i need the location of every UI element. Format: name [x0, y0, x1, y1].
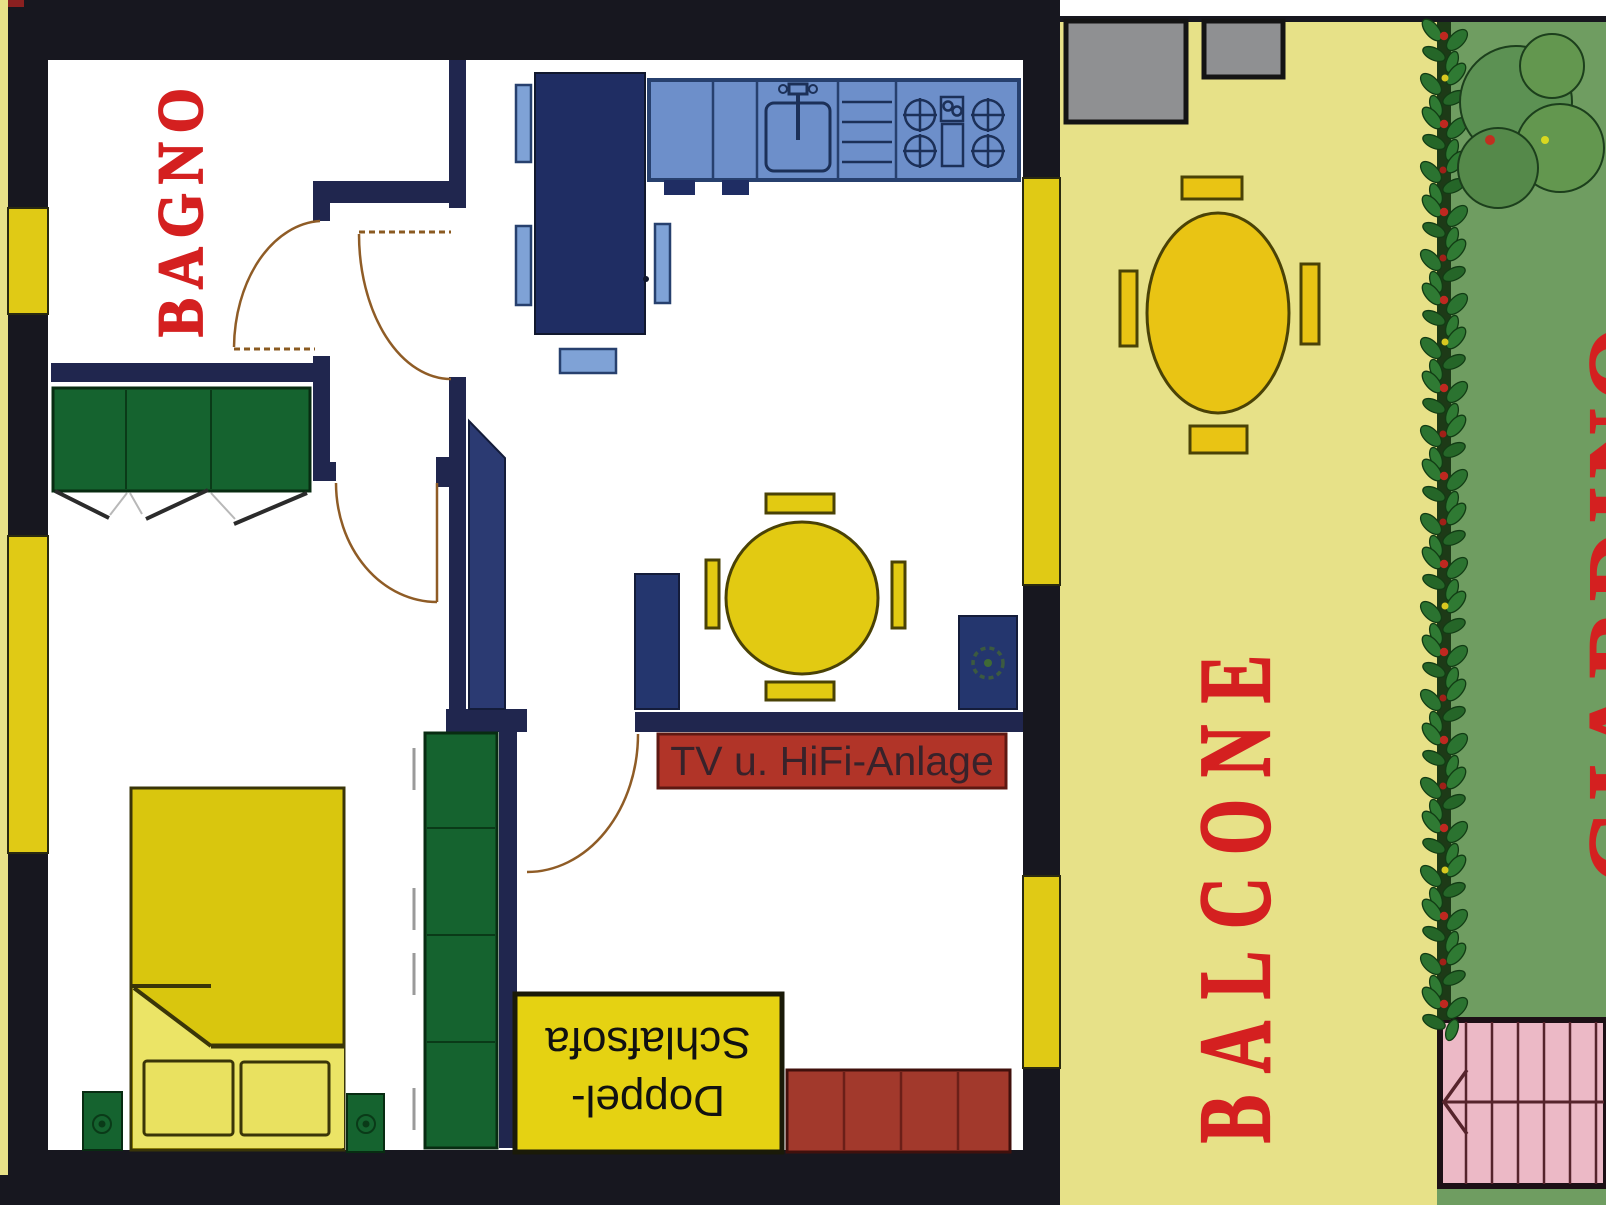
svg-text:BALCONE: BALCONE	[1179, 633, 1292, 1143]
svg-text:BAGNO: BAGNO	[145, 79, 217, 337]
svg-text:TV u. HiFi-Anlage: TV u. HiFi-Anlage	[670, 738, 994, 784]
svg-text:GIARDINO: GIARDINO	[1568, 318, 1606, 883]
